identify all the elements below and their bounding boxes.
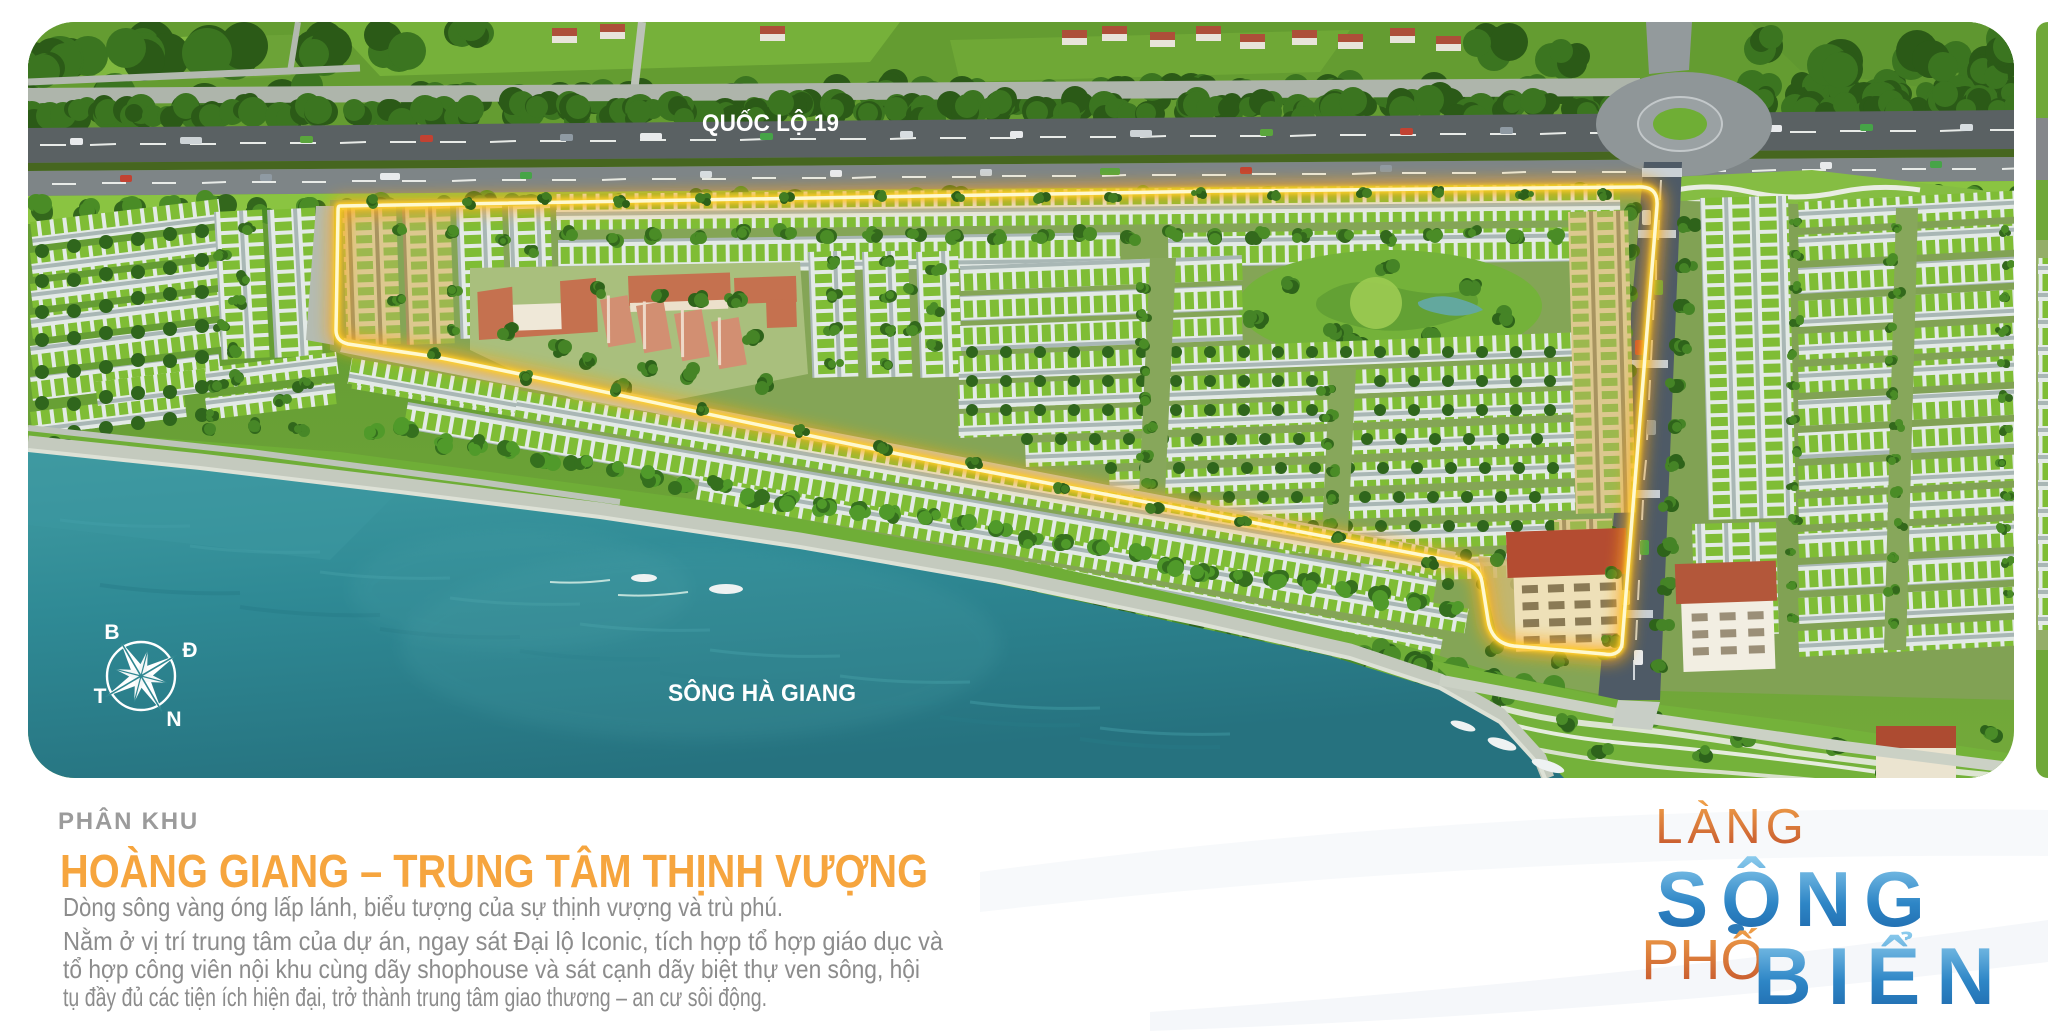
svg-text:T: T — [94, 685, 107, 708]
svg-text:tổ hợp công viên nội khu cùng: tổ hợp công viên nội khu cùng dãy shopho… — [63, 954, 920, 984]
svg-text:QUỐC LỘ 19: QUỐC LỘ 19 — [702, 109, 839, 137]
svg-text:PHÂN KHU: PHÂN KHU — [58, 807, 199, 835]
svg-text:tụ đầy đủ các tiện ích hiện đạ: tụ đầy đủ các tiện ích hiện đại, trở thà… — [63, 982, 767, 1012]
svg-text:HOÀNG GIANG – TRUNG TÂM THỊNH: HOÀNG GIANG – TRUNG TÂM THỊNH VƯỢNG — [60, 845, 928, 897]
svg-text:Đ: Đ — [182, 639, 197, 662]
svg-text:B: B — [104, 621, 119, 644]
svg-text:N: N — [166, 708, 181, 731]
svg-text:SÔNG HÀ GIANG: SÔNG HÀ GIANG — [668, 679, 856, 707]
svg-text:PHỐ: PHỐ — [1641, 927, 1765, 992]
svg-text:LÀNG: LÀNG — [1655, 800, 1808, 854]
svg-text:BIỂN: BIỂN — [1753, 931, 2011, 1022]
svg-text:Nằm ở vị trí trung tâm của dự: Nằm ở vị trí trung tâm của dự án, ngay s… — [63, 926, 943, 956]
svg-text:Dòng sông vàng óng lấp lánh, b: Dòng sông vàng óng lấp lánh, biểu tượng … — [63, 892, 783, 922]
